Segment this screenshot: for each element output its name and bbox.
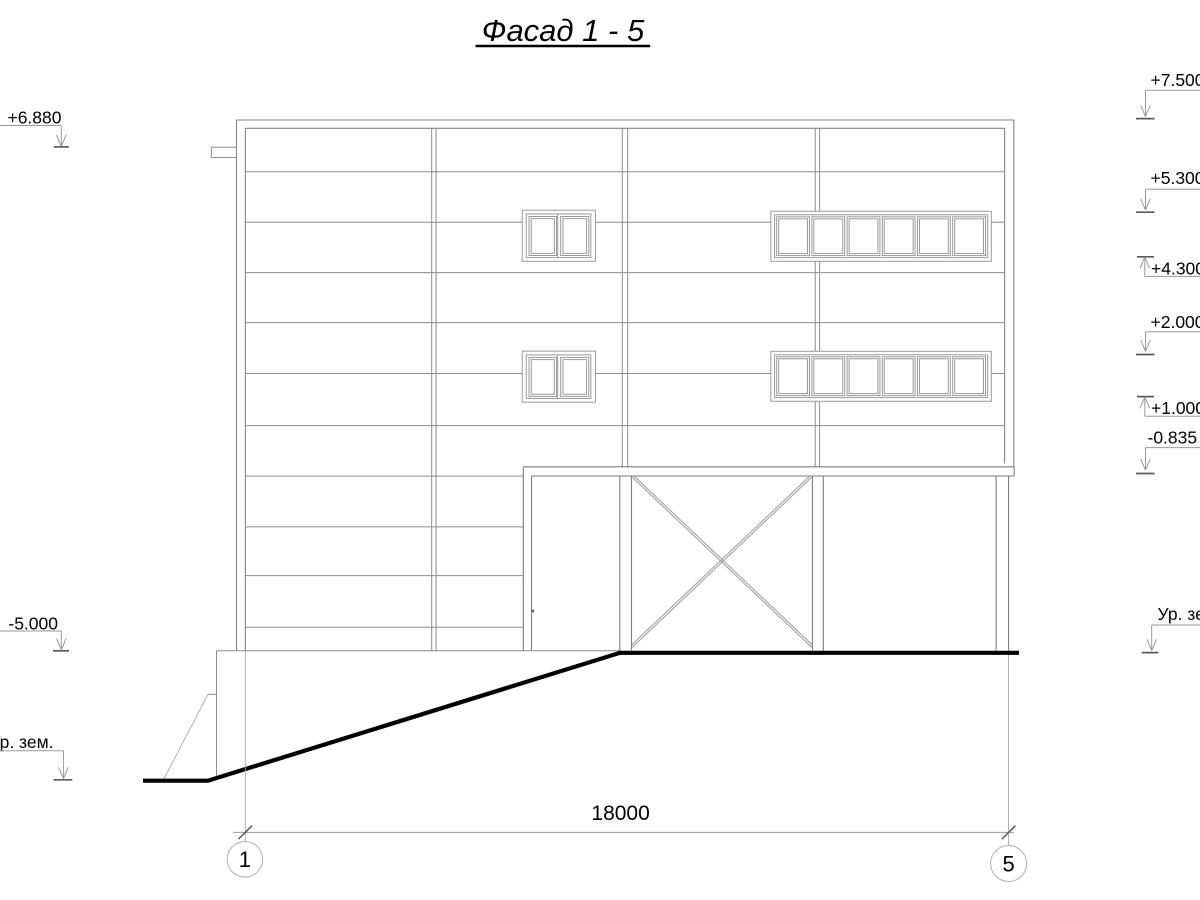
svg-text:+1.000: +1.000 — [1151, 398, 1200, 418]
svg-text:-0.835: -0.835 — [1148, 427, 1198, 447]
svg-text:+5.300: +5.300 — [1151, 168, 1200, 188]
svg-text:Фасад 1 - 5: Фасад 1 - 5 — [482, 13, 645, 48]
svg-text:-5.000: -5.000 — [8, 613, 58, 633]
svg-text:+4.300: +4.300 — [1151, 258, 1200, 278]
svg-text:+6.880: +6.880 — [7, 108, 61, 128]
svg-text:1: 1 — [239, 847, 251, 872]
svg-text:18000: 18000 — [591, 802, 649, 825]
svg-text:5: 5 — [1002, 851, 1014, 876]
svg-text:+7.500: +7.500 — [1151, 70, 1200, 90]
svg-text:+2.000: +2.000 — [1151, 312, 1200, 332]
svg-text:Ур. зем.: Ур. зем. — [1158, 604, 1200, 624]
svg-text:Ур. зем.: Ур. зем. — [0, 732, 54, 752]
